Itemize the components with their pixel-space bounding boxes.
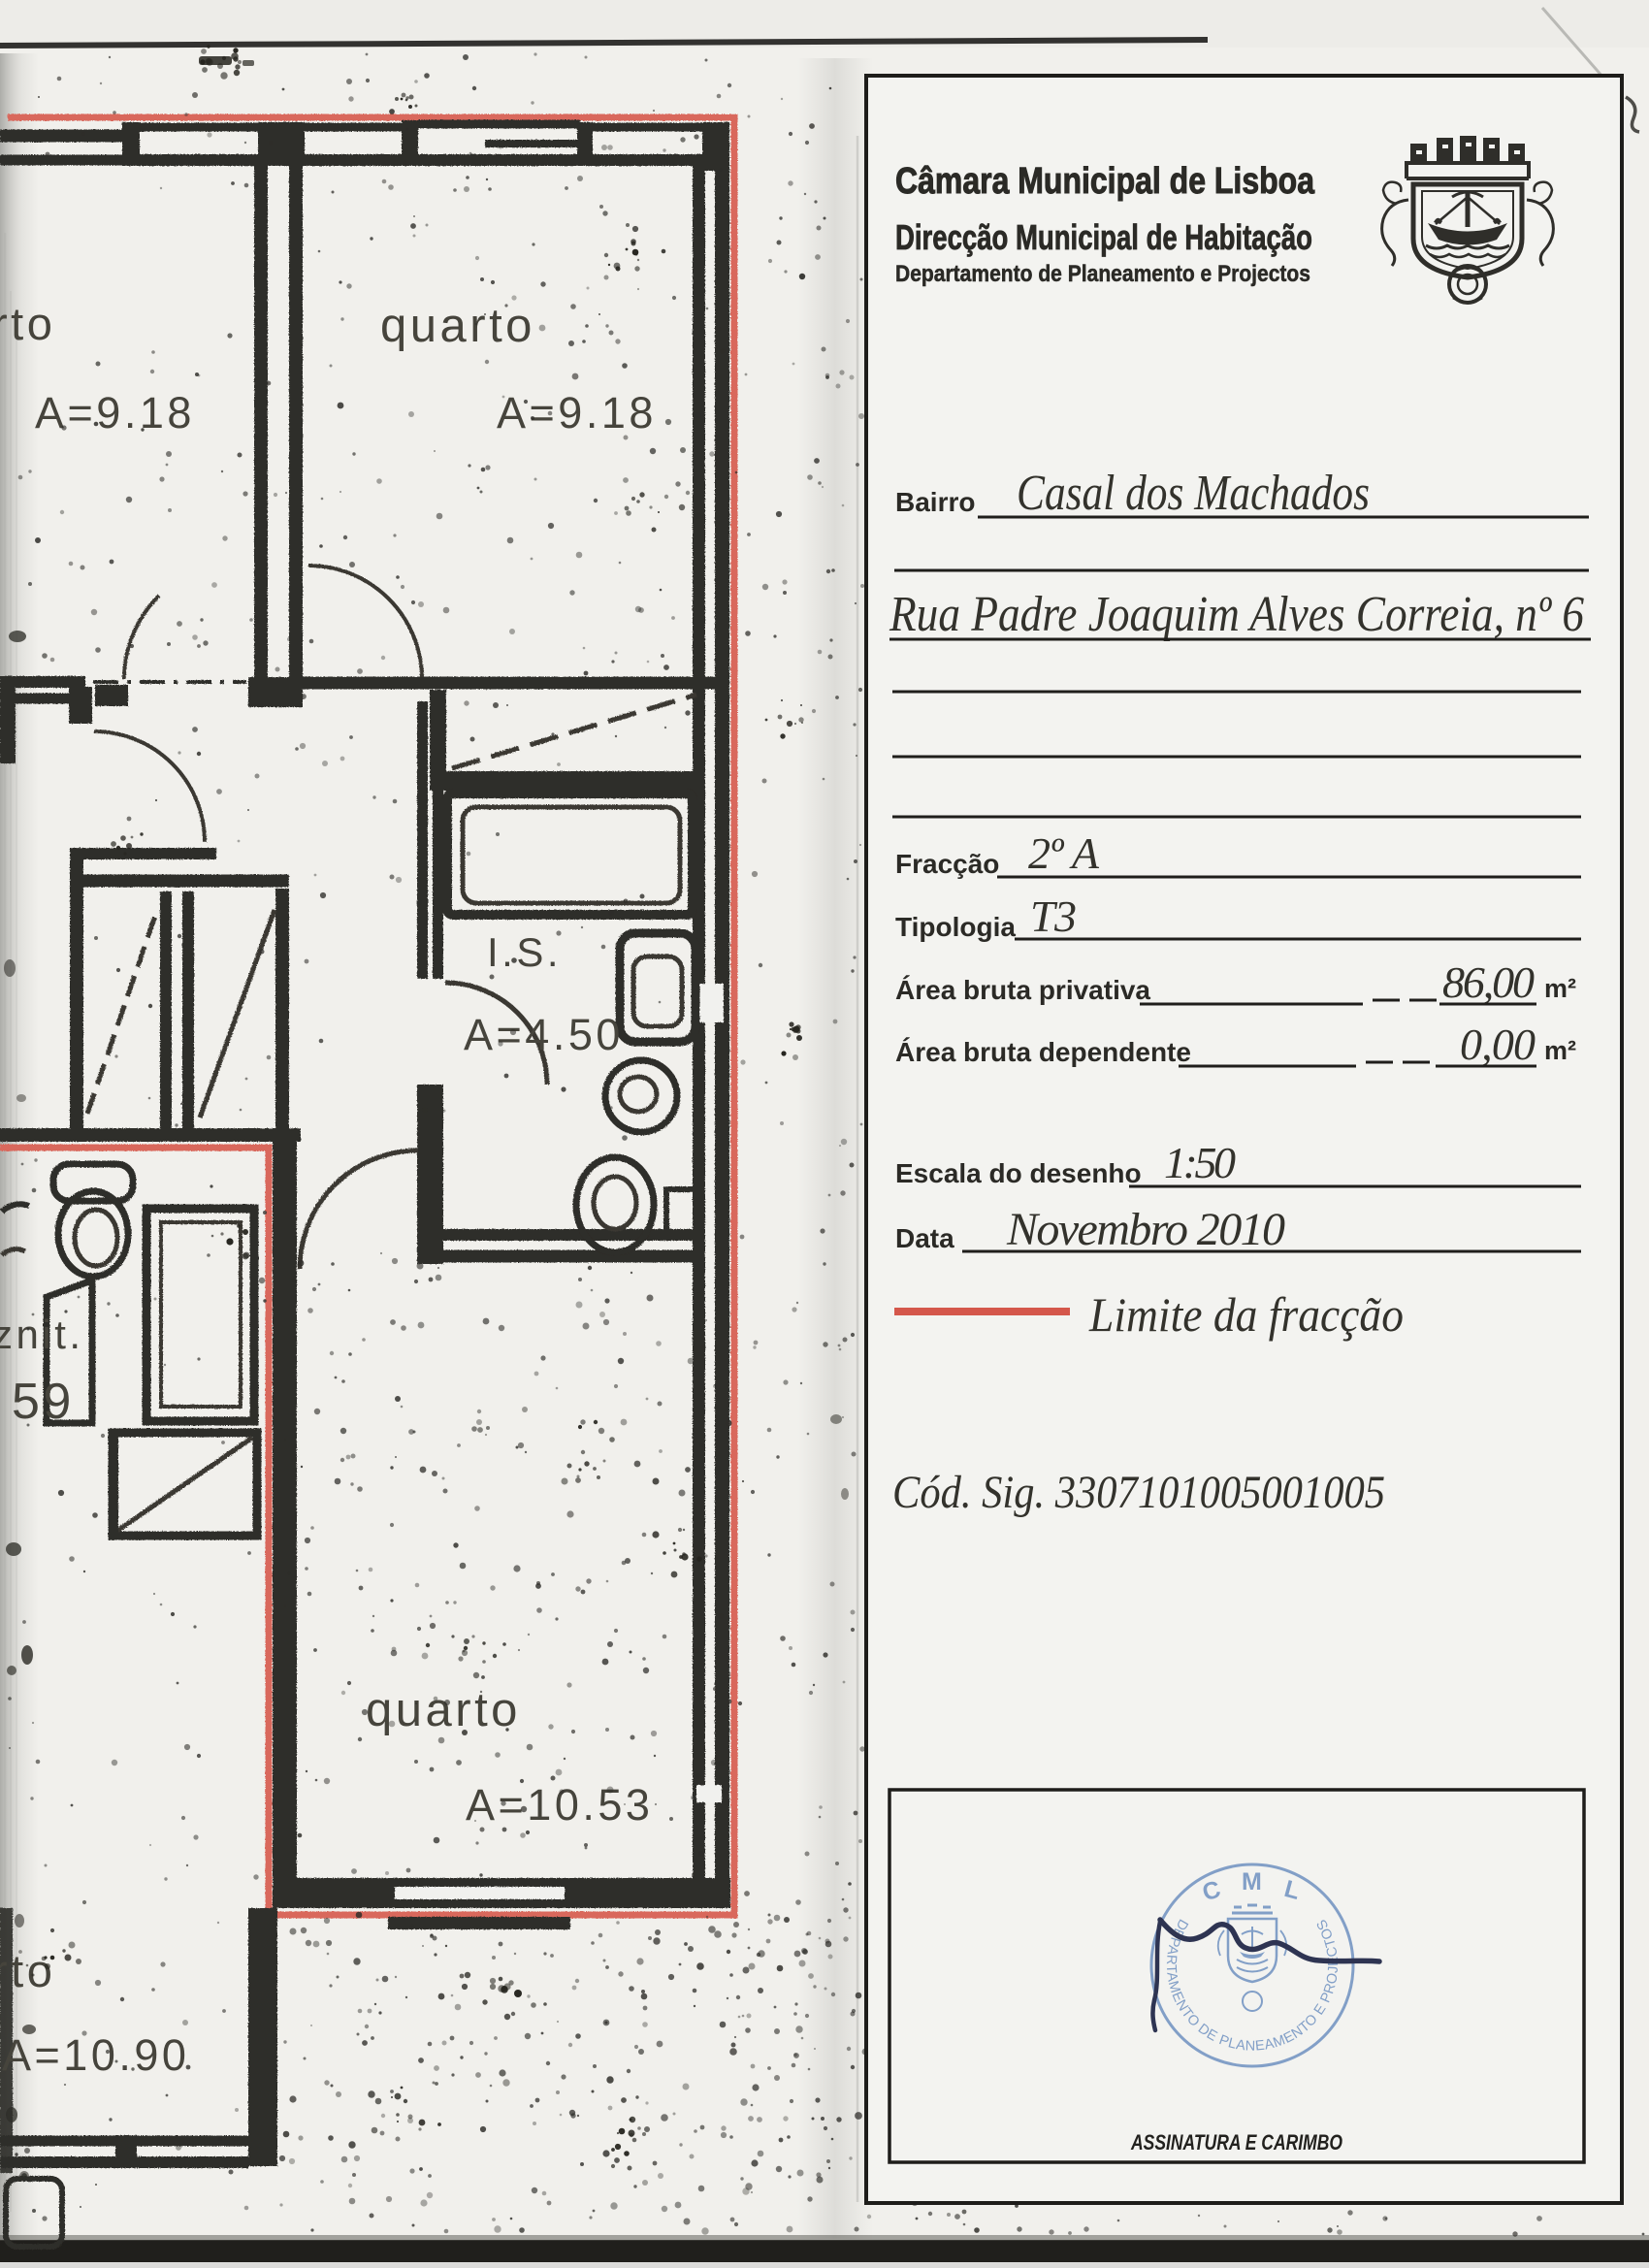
svg-text:Departamento de Planeamento e: Departamento de Planeamento e Projectos [895, 261, 1310, 287]
svg-text:Cód. Sig. 3307101005001005: Cód. Sig. 3307101005001005 [892, 1467, 1385, 1518]
svg-text:A=9.18: A=9.18 [497, 388, 657, 437]
svg-text:m²: m² [1544, 1036, 1576, 1065]
svg-text:Área bruta privativa: Área bruta privativa [895, 975, 1150, 1005]
svg-text:rto: rto [0, 298, 55, 349]
svg-text:Direcção Municipal de Habitaçã: Direcção Municipal de Habitação [895, 217, 1312, 257]
svg-text:Fracção: Fracção [895, 849, 999, 879]
svg-text:Escala do desenho: Escala do desenho [895, 1158, 1142, 1188]
svg-text:Casal dos Machados: Casal dos Machados [1017, 466, 1370, 521]
svg-text:0,00: 0,00 [1460, 1020, 1536, 1069]
svg-text:59: 59 [12, 1374, 75, 1430]
svg-text:rto: rto [0, 1945, 55, 1996]
svg-text:I.S.: I.S. [487, 929, 562, 975]
svg-text:m²: m² [1544, 974, 1576, 1003]
svg-text:Tipologia: Tipologia [895, 912, 1016, 942]
svg-text:Data: Data [895, 1223, 954, 1253]
svg-text:A=4.50: A=4.50 [464, 1010, 624, 1059]
svg-text:quarto: quarto [366, 1684, 521, 1736]
svg-text:A=9.18: A=9.18 [35, 388, 195, 437]
svg-text:1:50: 1:50 [1164, 1138, 1236, 1187]
svg-text:M: M [1242, 1868, 1262, 1895]
svg-text:znit.: znit. [0, 1312, 84, 1357]
svg-text:T3: T3 [1030, 891, 1077, 941]
svg-text:Limite da fracção: Limite da fracção [1088, 1287, 1404, 1342]
svg-text:Câmara Municipal de Lisboa: Câmara Municipal de Lisboa [895, 161, 1315, 202]
svg-text:quarto: quarto [380, 300, 535, 352]
svg-text:A=10.90: A=10.90 [2, 2030, 189, 2080]
svg-text:2º A: 2º A [1028, 828, 1100, 878]
svg-text:86,00: 86,00 [1442, 957, 1535, 1007]
svg-text:Rua Padre Joaquim Alves Correi: Rua Padre Joaquim Alves Correia, nº 6 [889, 587, 1584, 642]
svg-text:Bairro: Bairro [895, 487, 975, 517]
svg-text:ASSINATURA E CARIMBO: ASSINATURA E CARIMBO [1130, 2130, 1342, 2155]
svg-text:Área bruta dependente: Área bruta dependente [895, 1037, 1191, 1067]
svg-text:Novembro 2010: Novembro 2010 [1006, 1204, 1285, 1255]
